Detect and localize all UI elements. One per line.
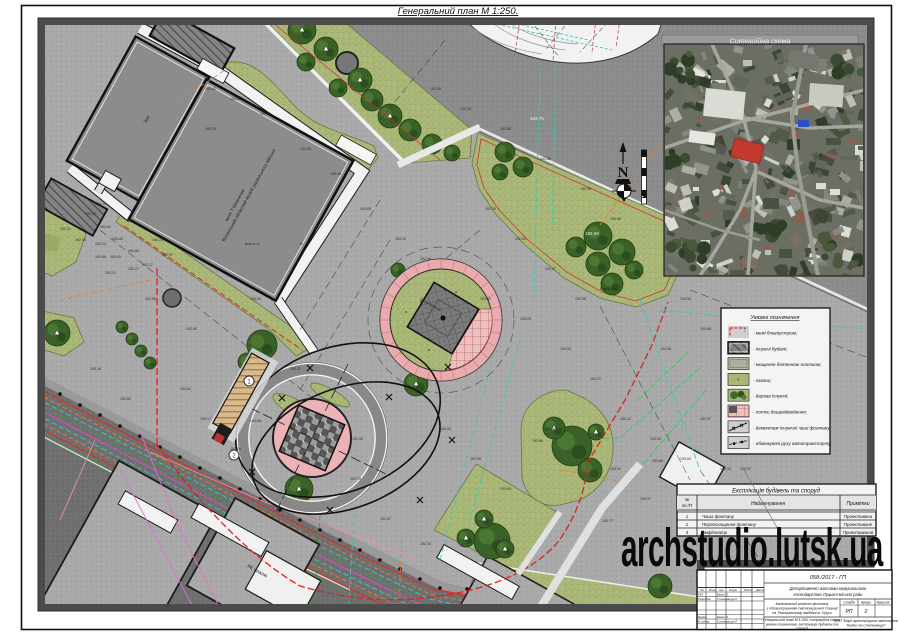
svg-text:193.14: 193.14 — [95, 202, 106, 206]
svg-text:193.68: 193.68 — [700, 327, 711, 331]
svg-text:193.41: 193.41 — [110, 255, 121, 259]
svg-text:Стельмащук Р.: Стельмащук Р. — [717, 620, 738, 624]
svg-text:193.78: 193.78 — [460, 107, 471, 111]
svg-text:- мощення бетонною плиткою;: - мощення бетонною плиткою; — [753, 362, 822, 367]
svg-text:192.21: 192.21 — [60, 227, 71, 231]
svg-text:192.58: 192.58 — [500, 127, 511, 131]
svg-text:по /П: по /П — [682, 503, 693, 508]
svg-text:192.99: 192.99 — [420, 257, 431, 261]
svg-text:193.65: 193.65 — [250, 297, 261, 301]
svg-text:Арк: Арк — [718, 588, 724, 592]
svg-text:192.90: 192.90 — [75, 238, 86, 242]
svg-text:193.10: 193.10 — [395, 237, 406, 241]
svg-text:192.97: 192.97 — [640, 497, 651, 501]
svg-text:192.69: 192.69 — [585, 231, 599, 236]
svg-text:Експлікація будівель та споруд: Експлікація будівель та споруд — [732, 489, 821, 495]
svg-text:192.27: 192.27 — [128, 267, 139, 271]
svg-text:192.18: 192.18 — [485, 207, 496, 211]
svg-text:192.96: 192.96 — [145, 297, 156, 301]
svg-text:192.76: 192.76 — [530, 116, 544, 121]
svg-text:193.83: 193.83 — [610, 217, 621, 221]
svg-text:- демонтаж існуючої чаші фонта: - демонтаж існуючої чаші фонтану; — [753, 425, 832, 430]
svg-text:192.97: 192.97 — [740, 467, 751, 471]
svg-text:споруд: споруд — [796, 627, 807, 631]
svg-text:058./2017 - ГП: 058./2017 - ГП — [810, 575, 846, 581]
svg-text:РП: РП — [846, 609, 853, 615]
svg-text:193.27: 193.27 — [85, 212, 96, 216]
svg-text:193.86: 193.86 — [250, 419, 261, 423]
svg-text:Умовні позначення: Умовні позначення — [750, 315, 800, 321]
svg-text:192.87: 192.87 — [380, 517, 391, 521]
svg-text:193.21: 193.21 — [105, 271, 116, 275]
svg-text:192.27: 192.27 — [142, 263, 153, 267]
svg-text:192.21: 192.21 — [590, 377, 601, 381]
svg-text:Примітки: Примітки — [846, 501, 869, 507]
svg-text:- обмежувачі руху автотранспор: - обмежувачі руху автотранспорту; — [753, 441, 832, 446]
svg-text:193.53: 193.53 — [480, 297, 491, 301]
svg-text:192.93: 192.93 — [300, 147, 311, 151]
svg-text:192.85: 192.85 — [186, 327, 197, 331]
svg-text:192.14: 192.14 — [230, 447, 241, 451]
svg-text:192.81: 192.81 — [260, 112, 271, 116]
svg-text:- газони;: - газони; — [753, 378, 772, 383]
svg-text:192.97: 192.97 — [162, 253, 173, 257]
svg-text:192.24: 192.24 — [152, 238, 163, 242]
svg-text:192.81: 192.81 — [100, 225, 111, 229]
svg-text:господарства Луцької міської р: господарства Луцької міської ради — [794, 592, 864, 597]
svg-text:Підпис: Підпис — [744, 588, 753, 592]
svg-text:Зм: Зм — [700, 588, 704, 592]
svg-text:193.99: 193.99 — [500, 487, 511, 491]
svg-text:192.53: 192.53 — [560, 347, 571, 351]
svg-text:Найменування: Найменування — [751, 500, 785, 507]
svg-text:- лотки дощовідведення;: - лотки дощовідведення; — [753, 410, 808, 415]
svg-text:Капітальний ремонт фонтану: Капітальний ремонт фонтану — [776, 602, 829, 606]
svg-text:Генеральний план М 1:250.: Генеральний план М 1:250. — [398, 6, 519, 17]
svg-text:Балко О.: Балко О. — [717, 593, 729, 597]
svg-text:192.78: 192.78 — [350, 477, 361, 481]
svg-text:193.77: 193.77 — [602, 519, 613, 523]
svg-text:193.85: 193.85 — [360, 207, 371, 211]
svg-text:192.39: 192.39 — [575, 297, 586, 301]
svg-text:Бесік л.л.: Бесік л.л. — [600, 286, 618, 291]
svg-text:Аркушів: Аркушів — [876, 601, 890, 605]
svg-text:192.39: 192.39 — [205, 127, 216, 131]
svg-text:- дерева існуючі;: - дерева існуючі; — [753, 394, 789, 399]
svg-text:Департамент житлово-комунально: Департамент житлово-комунального — [789, 586, 867, 591]
svg-text:Керівн.: Керівн. — [698, 615, 707, 619]
svg-text:192.97: 192.97 — [700, 417, 711, 421]
svg-text:193.84: 193.84 — [128, 249, 139, 253]
svg-text:193.24: 193.24 — [230, 97, 241, 101]
svg-text:докум.: докум. — [729, 588, 738, 592]
svg-text:193.61: 193.61 — [180, 387, 191, 391]
svg-text:193.58: 193.58 — [545, 427, 556, 431]
svg-text:Балко О.: Балко О. — [717, 615, 729, 619]
svg-text:193.15: 193.15 — [430, 87, 441, 91]
svg-text:N: N — [618, 165, 629, 181]
svg-text:Генеральний план М 1:250, ситу: Генеральний план М 1:250, ситуаційна схе… — [763, 618, 841, 622]
svg-text:193.30: 193.30 — [720, 467, 731, 471]
svg-text:- межі благоустрою;: - межі благоустрою; — [753, 331, 798, 336]
svg-text:№: № — [685, 497, 690, 502]
svg-text:Аркуш: Аркуш — [860, 601, 871, 605]
svg-text:193.56: 193.56 — [95, 255, 106, 259]
svg-text:193.84: 193.84 — [112, 237, 123, 241]
svg-text:на Театральному майдані м. Луц: на Театральному майдані м. Луцьк — [772, 611, 832, 615]
svg-text:Кільк: Кільк — [709, 588, 716, 592]
svg-text:193.91: 193.91 — [610, 467, 621, 471]
svg-text:193.92: 193.92 — [205, 87, 216, 91]
svg-text:2: 2 — [864, 609, 868, 615]
svg-text:193.55: 193.55 — [440, 427, 451, 431]
svg-text:192.82: 192.82 — [120, 397, 131, 401]
svg-text:Стадія: Стадія — [843, 601, 855, 605]
svg-text:"Балко та Стельмащук": "Балко та Стельмащук" — [846, 624, 886, 628]
svg-text:193.86: 193.86 — [532, 439, 543, 443]
svg-text:192.59: 192.59 — [352, 437, 363, 441]
svg-text:193.80: 193.80 — [652, 459, 663, 463]
svg-text:193.18: 193.18 — [90, 367, 101, 371]
svg-text:Дата: Дата — [755, 588, 764, 592]
svg-text:193.38: 193.38 — [330, 172, 341, 176]
svg-text:192.13: 192.13 — [95, 242, 106, 246]
svg-text:193.37: 193.37 — [290, 367, 301, 371]
svg-text:Стельмащук Р.: Стельмащук Р. — [717, 597, 738, 601]
svg-text:193.90: 193.90 — [580, 187, 591, 191]
svg-text:193.22: 193.22 — [620, 417, 631, 421]
svg-text:193.17: 193.17 — [200, 417, 211, 421]
svg-text:193.54: 193.54 — [650, 437, 661, 441]
svg-text:192.30: 192.30 — [420, 542, 431, 546]
svg-text:192.47: 192.47 — [545, 267, 556, 271]
svg-text:192.94: 192.94 — [515, 237, 526, 241]
svg-text:Н.контр.: Н.контр. — [698, 620, 710, 624]
svg-text:193.28: 193.28 — [660, 347, 671, 351]
svg-text:193.29: 193.29 — [520, 317, 531, 321]
svg-text:- існуючі будівлі;: - існуючі будівлі; — [753, 346, 788, 351]
svg-text:192.58: 192.58 — [680, 297, 691, 301]
svg-text:192.80: 192.80 — [540, 157, 551, 161]
svg-text:193.60: 193.60 — [680, 457, 691, 461]
svg-text:192.95: 192.95 — [470, 457, 481, 461]
svg-text:з облаштуванням світломузичної: з облаштуванням світломузичної станції — [766, 607, 839, 611]
svg-text:ФОП "Бюро архітектурних майсте: ФОП "Бюро архітектурних майстерень — [834, 619, 899, 623]
svg-text:Розробив: Розробив — [698, 597, 711, 601]
